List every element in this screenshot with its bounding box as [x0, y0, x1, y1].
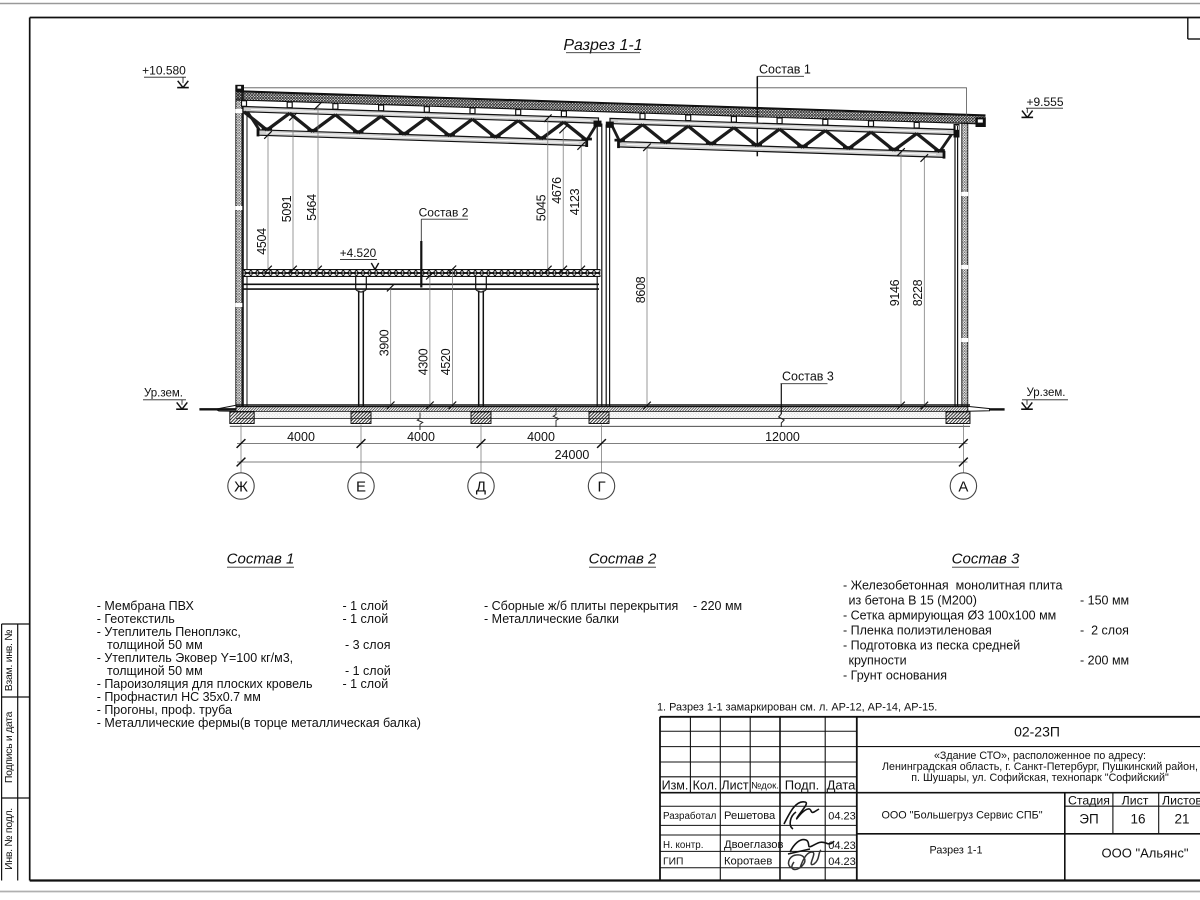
svg-text:- Сетка армирующая Ø3 100х100: - Сетка армирующая Ø3 100х100 мм — [843, 609, 1056, 623]
svg-text:Решетова: Решетова — [724, 810, 776, 822]
svg-text:ГИП: ГИП — [663, 856, 683, 867]
svg-text:- 200 мм: - 200 мм — [1080, 654, 1129, 668]
svg-text:Состав 3: Состав 3 — [782, 370, 834, 384]
svg-text:02-23П: 02-23П — [1014, 724, 1060, 740]
svg-text:п. Шушары, ул. Софийская, техн: п. Шушары, ул. Софийская, технопарк "Соф… — [911, 772, 1169, 784]
svg-text:Двоеглазов: Двоеглазов — [724, 839, 784, 851]
svg-text:3900: 3900 — [378, 329, 392, 356]
svg-text:- Профнастил НС 35х0.7 мм: - Профнастил НС 35х0.7 мм — [97, 690, 261, 704]
svg-text:Ж: Ж — [234, 478, 248, 495]
svg-text:ООО "Альянс": ООО "Альянс" — [1102, 846, 1189, 861]
svg-text:- Металлические балки: - Металлические балки — [484, 612, 619, 626]
svg-text:8228: 8228 — [911, 279, 925, 306]
svg-text:8608: 8608 — [634, 276, 648, 303]
svg-text:Е: Е — [356, 478, 366, 495]
svg-text:Лист: Лист — [721, 778, 748, 792]
svg-text:- 2 слоя: - 2 слоя — [1080, 624, 1129, 638]
svg-text:Инв. № подл.: Инв. № подл. — [3, 808, 15, 870]
svg-text:Разрез 1-1: Разрез 1-1 — [563, 37, 642, 54]
svg-text:- Утеплитель Эковер Y=100 кг/м: - Утеплитель Эковер Y=100 кг/м3, — [97, 651, 293, 665]
svg-text:Изм.: Изм. — [662, 778, 689, 792]
svg-text:Состав 1: Состав 1 — [759, 63, 811, 77]
svg-text:- Мембрана ПВХ: - Мембрана ПВХ — [97, 599, 195, 613]
svg-text:Ур.зем.: Ур.зем. — [144, 387, 183, 399]
svg-text:5045: 5045 — [535, 194, 549, 221]
svg-text:- Сборные ж/б плиты перекрытия: - Сборные ж/б плиты перекрытия — [484, 599, 678, 613]
svg-text:4000: 4000 — [527, 430, 555, 444]
svg-text:4123: 4123 — [568, 188, 582, 215]
svg-text:04.23: 04.23 — [828, 856, 856, 868]
svg-text:толщиной 50 мм: толщиной 50 мм — [107, 638, 203, 652]
svg-text:Разработал: Разработал — [663, 811, 717, 822]
svg-text:5091: 5091 — [280, 195, 294, 222]
svg-text:04.23: 04.23 — [828, 811, 856, 823]
svg-text:- Пленка полиэтиленовая: - Пленка полиэтиленовая — [843, 624, 992, 638]
svg-text:04.23: 04.23 — [828, 840, 856, 852]
svg-text:4300: 4300 — [417, 348, 431, 375]
svg-text:Подпись и дата: Подпись и дата — [3, 711, 15, 783]
svg-text:4676: 4676 — [550, 177, 564, 204]
svg-text:- Прогоны, проф. труба: - Прогоны, проф. труба — [97, 703, 232, 717]
svg-text:Состав 2: Состав 2 — [419, 206, 469, 220]
svg-text:Д: Д — [476, 478, 486, 495]
svg-text:21: 21 — [1174, 812, 1189, 827]
svg-text:- 3 слоя: - 3 слоя — [345, 638, 390, 652]
svg-text:- 220 мм: - 220 мм — [693, 599, 742, 613]
svg-text:- Геотекстиль: - Геотекстиль — [97, 612, 175, 626]
svg-text:- Металлические фермы(в торце: - Металлические фермы(в торце металличес… — [97, 716, 421, 730]
svg-text:ЭП: ЭП — [1079, 812, 1098, 827]
svg-text:из бетона В 15 (М200): из бетона В 15 (М200) — [849, 594, 977, 608]
svg-text:- 1 слой: - 1 слой — [343, 612, 389, 626]
svg-text:1. Разрез 1-1 замаркирован см.: 1. Разрез 1-1 замаркирован см. л. АР-12,… — [657, 702, 937, 714]
svg-text:№док.: №док. — [751, 780, 779, 791]
svg-text:Коротаев: Коротаев — [724, 855, 772, 867]
svg-text:4000: 4000 — [287, 430, 315, 444]
svg-text:Состав 3: Состав 3 — [952, 551, 1020, 568]
svg-text:- Железобетонная монолитная п: - Железобетонная монолитная плита — [843, 579, 1062, 593]
svg-text:- 1 слой: - 1 слой — [343, 677, 389, 691]
svg-text:+9.555: +9.555 — [1026, 95, 1063, 109]
svg-text:+10.580: +10.580 — [142, 63, 186, 77]
svg-text:Г: Г — [597, 478, 605, 495]
svg-text:24000: 24000 — [555, 448, 590, 462]
svg-text:9146: 9146 — [888, 279, 902, 306]
svg-text:толщиной 50 мм: толщиной 50 мм — [107, 664, 203, 678]
svg-text:- Грунт основания: - Грунт основания — [843, 669, 947, 683]
svg-text:+4.520: +4.520 — [340, 246, 377, 260]
svg-text:Подп.: Подп. — [785, 777, 820, 792]
svg-text:Взам. инв. №: Взам. инв. № — [3, 630, 15, 691]
svg-text:- Подготовка из песка средней: - Подготовка из песка средней — [843, 639, 1020, 653]
svg-text:- Утеплитель Пеноплэкс,: - Утеплитель Пеноплэкс, — [97, 625, 241, 639]
svg-text:5464: 5464 — [305, 194, 319, 221]
svg-text:Дата: Дата — [827, 777, 857, 792]
svg-text:4504: 4504 — [255, 228, 269, 255]
svg-text:Кол.: Кол. — [693, 778, 718, 792]
svg-text:Ур.зем.: Ур.зем. — [1026, 387, 1065, 399]
svg-text:- Пароизоляция для плоских кро: - Пароизоляция для плоских кровель — [97, 677, 313, 691]
svg-text:12000: 12000 — [765, 430, 800, 444]
svg-text:Разрез 1-1: Разрез 1-1 — [929, 845, 982, 857]
svg-text:16: 16 — [1130, 812, 1145, 827]
svg-text:Н. контр.: Н. контр. — [663, 840, 703, 851]
svg-text:- 1 слой: - 1 слой — [345, 664, 391, 678]
svg-text:А: А — [958, 478, 968, 495]
svg-text:ООО "Большегруз Сервис СПБ": ООО "Большегруз Сервис СПБ" — [881, 810, 1042, 822]
svg-text:- 1 слой: - 1 слой — [343, 599, 389, 613]
svg-text:крупности: крупности — [849, 654, 907, 668]
svg-text:Лист: Лист — [1122, 793, 1149, 807]
svg-text:Листов: Листов — [1162, 793, 1200, 807]
svg-text:4520: 4520 — [439, 348, 453, 375]
svg-text:- 150 мм: - 150 мм — [1080, 594, 1129, 608]
svg-text:4000: 4000 — [407, 430, 435, 444]
svg-text:Состав 2: Состав 2 — [589, 551, 657, 568]
svg-text:Стадия: Стадия — [1068, 793, 1110, 807]
svg-text:Состав 1: Состав 1 — [227, 551, 295, 568]
